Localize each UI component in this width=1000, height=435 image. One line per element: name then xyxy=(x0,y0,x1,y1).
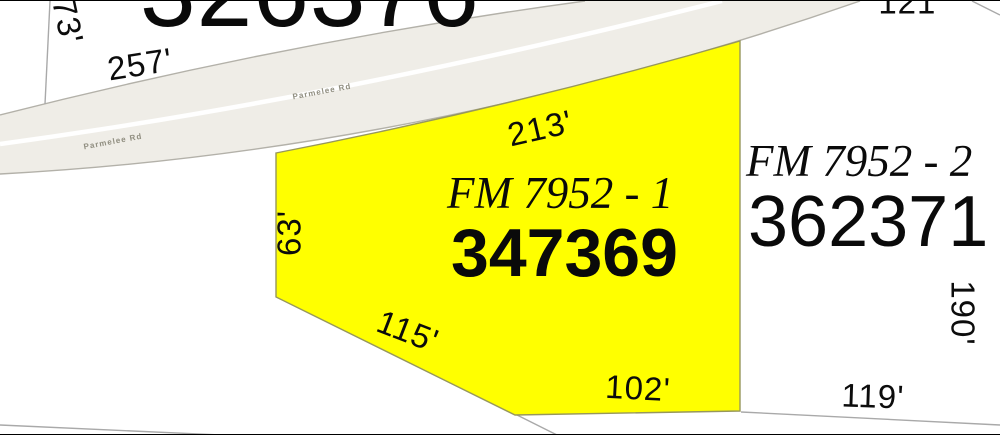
dimension-label-119: 119' xyxy=(841,378,905,413)
dimension-label-121: 121' xyxy=(878,0,943,19)
parcel-347369-id[interactable]: 347369 xyxy=(451,219,678,287)
parcel-boundary-line-southwest xyxy=(0,425,265,435)
parcel-347369-name: FM 7952 - 1 xyxy=(447,171,673,216)
dimension-label-63: 63' xyxy=(273,210,306,256)
parcel-boundary-line-south xyxy=(515,414,563,435)
dimension-label-190: 190' xyxy=(947,280,980,345)
parcel-326376-id[interactable]: 326376 xyxy=(140,0,480,42)
parcel-362371-id[interactable]: 362371 xyxy=(748,186,988,258)
dimension-label-73: 73' xyxy=(47,0,89,47)
parcel-map: 326376 FM 7952 - 1 347369 FM 7952 - 2 36… xyxy=(0,0,1000,435)
parcel-362371-name: FM 7952 - 2 xyxy=(746,139,972,184)
parcel-boundary-line-northeast xyxy=(972,1,1000,15)
dimension-label-102: 102' xyxy=(605,370,672,406)
